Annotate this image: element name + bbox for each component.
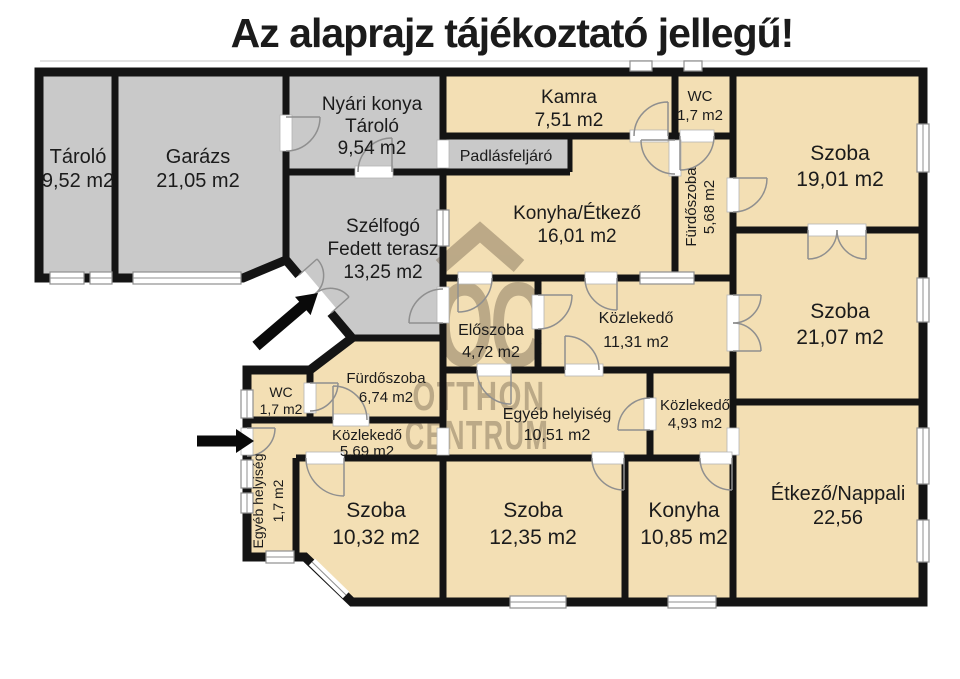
svg-text:Tároló: Tároló	[50, 146, 107, 168]
svg-text:Padlásfeljáró: Padlásfeljáró	[460, 148, 553, 165]
svg-text:6,74 m2: 6,74 m2	[359, 389, 413, 406]
svg-text:Szoba: Szoba	[346, 499, 406, 522]
room-label-padlasfeljaro: Padlásfeljáró	[460, 148, 553, 165]
svg-text:Garázs: Garázs	[166, 146, 230, 168]
svg-text:Szoba: Szoba	[810, 300, 870, 323]
svg-text:13,25 m2: 13,25 m2	[343, 262, 422, 283]
svg-text:7,51 m2: 7,51 m2	[535, 110, 604, 131]
svg-text:Konyha/Étkező: Konyha/Étkező	[513, 203, 641, 224]
svg-text:5,68 m2: 5,68 m2	[701, 180, 718, 234]
svg-text:10,85 m2: 10,85 m2	[640, 526, 728, 549]
svg-text:Közlekedő: Közlekedő	[660, 397, 730, 414]
svg-text:Szoba: Szoba	[503, 499, 563, 522]
entrance-arrow-ne-icon	[252, 293, 318, 350]
room-label-kozlekedo-493: Közlekedő 4,93 m2	[660, 397, 730, 432]
vent-wc	[684, 61, 702, 71]
svg-text:Kamra: Kamra	[541, 87, 597, 108]
floor-plan-page: Az alaprajz tájékoztató jellegű! OC OTTH…	[0, 0, 960, 679]
svg-text:Közlekedő: Közlekedő	[599, 310, 674, 327]
svg-text:22,56: 22,56	[813, 507, 863, 529]
page-title: Az alaprajz tájékoztató jellegű!	[231, 10, 794, 56]
svg-text:9,52 m2: 9,52 m2	[42, 170, 114, 192]
svg-text:Előszoba: Előszoba	[458, 322, 524, 339]
svg-text:Tároló: Tároló	[345, 116, 399, 137]
svg-text:Étkező/Nappali: Étkező/Nappali	[771, 482, 906, 505]
svg-text:Egyéb helyiség: Egyéb helyiség	[250, 454, 266, 549]
svg-text:WC: WC	[269, 384, 292, 400]
svg-text:10,51 m2: 10,51 m2	[524, 427, 591, 444]
svg-text:16,01 m2: 16,01 m2	[537, 226, 616, 247]
svg-text:4,72 m2: 4,72 m2	[462, 344, 520, 361]
svg-text:4,93 m2: 4,93 m2	[668, 415, 722, 432]
svg-text:21,05 m2: 21,05 m2	[156, 170, 239, 192]
svg-text:Fedett terasz: Fedett terasz	[328, 239, 439, 260]
svg-text:10,32 m2: 10,32 m2	[332, 526, 420, 549]
svg-text:1,7 m2: 1,7 m2	[677, 107, 723, 124]
svg-text:Konyha: Konyha	[648, 499, 720, 522]
svg-text:Fürdőszoba: Fürdőszoba	[346, 370, 426, 387]
room-kozlekedo-493	[650, 370, 733, 458]
svg-text:WC: WC	[688, 88, 713, 105]
svg-text:1,7 m2: 1,7 m2	[270, 479, 286, 522]
svg-text:Közlekedő: Közlekedő	[332, 427, 402, 444]
svg-text:Egyéb helyiség: Egyéb helyiség	[503, 406, 612, 423]
svg-text:Szoba: Szoba	[810, 142, 870, 165]
svg-text:12,35 m2: 12,35 m2	[489, 526, 577, 549]
svg-text:5,69 m2: 5,69 m2	[340, 443, 394, 460]
svg-text:1,7 m2: 1,7 m2	[260, 401, 303, 417]
svg-text:19,01 m2: 19,01 m2	[796, 168, 884, 191]
room-label-kozlekedo-569: Közlekedő 5,69 m2	[332, 427, 402, 460]
svg-text:Nyári konya: Nyári konya	[322, 94, 423, 115]
floor-plan: Az alaprajz tájékoztató jellegű! OC OTTH…	[0, 0, 960, 679]
title-divider	[40, 60, 920, 62]
vent-kamra	[630, 61, 652, 71]
svg-text:11,31 m2: 11,31 m2	[603, 334, 669, 351]
svg-text:21,07 m2: 21,07 m2	[796, 326, 884, 349]
svg-text:Fürdőszoba: Fürdőszoba	[683, 167, 700, 247]
svg-text:9,54 m2: 9,54 m2	[338, 138, 407, 159]
svg-text:Szélfogó: Szélfogó	[346, 216, 420, 237]
